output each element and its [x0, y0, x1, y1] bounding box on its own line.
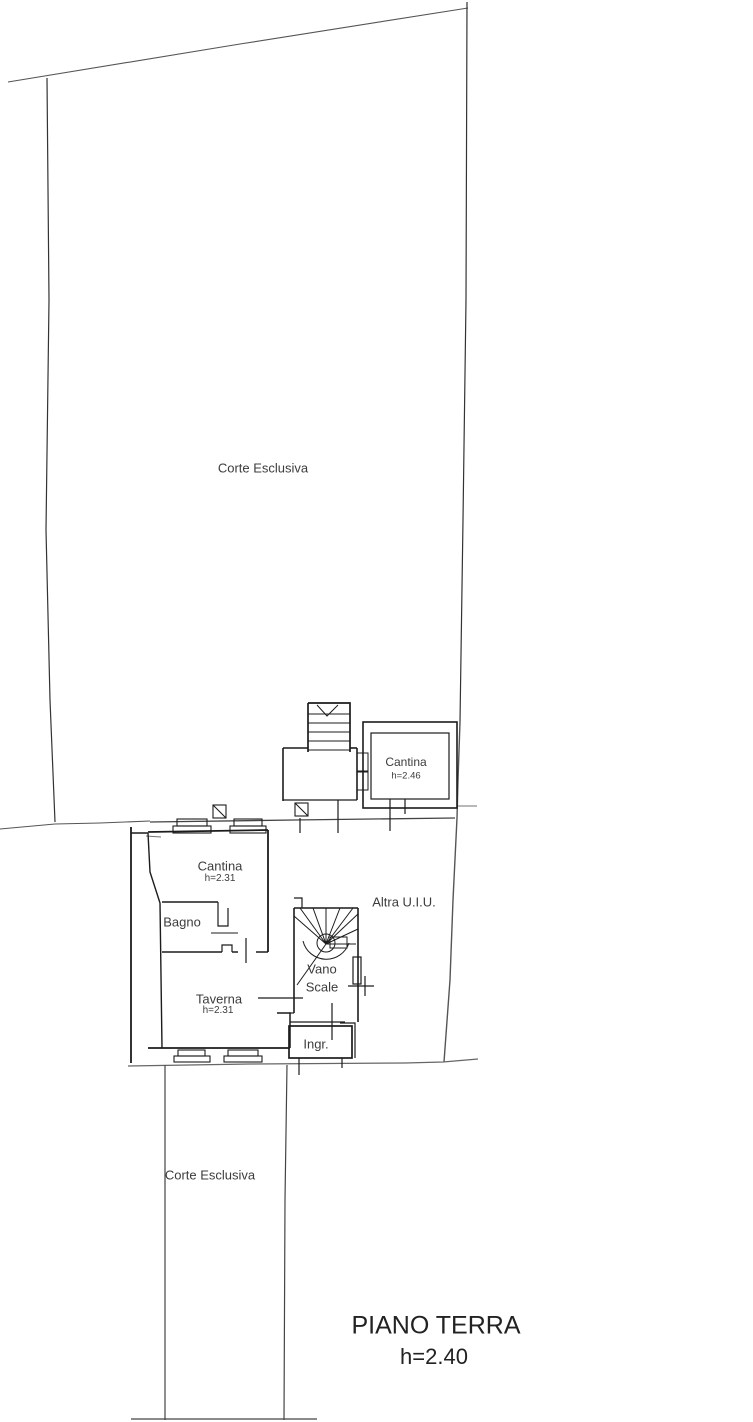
label-vano-scale-line1: Vano — [307, 963, 336, 976]
stair-door-leaf — [353, 957, 361, 984]
label-altra-uiu: Altra U.I.U. — [372, 896, 436, 909]
label-vano-scale-line2: Scale — [306, 981, 339, 994]
label-cantina-large-height: h=2.31 — [205, 874, 236, 884]
floor-plan-drawing — [0, 0, 753, 1422]
window-symbols — [173, 819, 266, 1062]
floor-plan-canvas: Corte Esclusiva Cantina h=2.46 Cantina h… — [0, 0, 753, 1422]
label-taverna-height: h=2.31 — [203, 1006, 234, 1016]
label-cantina-large: Cantina — [198, 860, 243, 873]
plan-title-height: h=2.40 — [400, 1346, 468, 1368]
straight-staircase — [308, 703, 350, 752]
label-cantina-small-height: h=2.46 — [391, 771, 420, 781]
courtyard-bottom-outline — [131, 1065, 317, 1420]
label-corte-esclusiva-bottom: Corte Esclusiva — [165, 1169, 255, 1182]
bagno-walls — [162, 902, 268, 963]
label-bagno: Bagno — [163, 916, 201, 929]
plan-title: PIANO TERRA — [351, 1314, 520, 1339]
label-taverna: Taverna — [196, 993, 242, 1006]
vent-squares — [213, 803, 308, 818]
entry-vestibule-walls — [283, 748, 357, 801]
label-ingresso: Ingr. — [303, 1038, 328, 1051]
label-cantina-small: Cantina — [385, 756, 426, 768]
label-corte-esclusiva-top: Corte Esclusiva — [218, 462, 308, 475]
